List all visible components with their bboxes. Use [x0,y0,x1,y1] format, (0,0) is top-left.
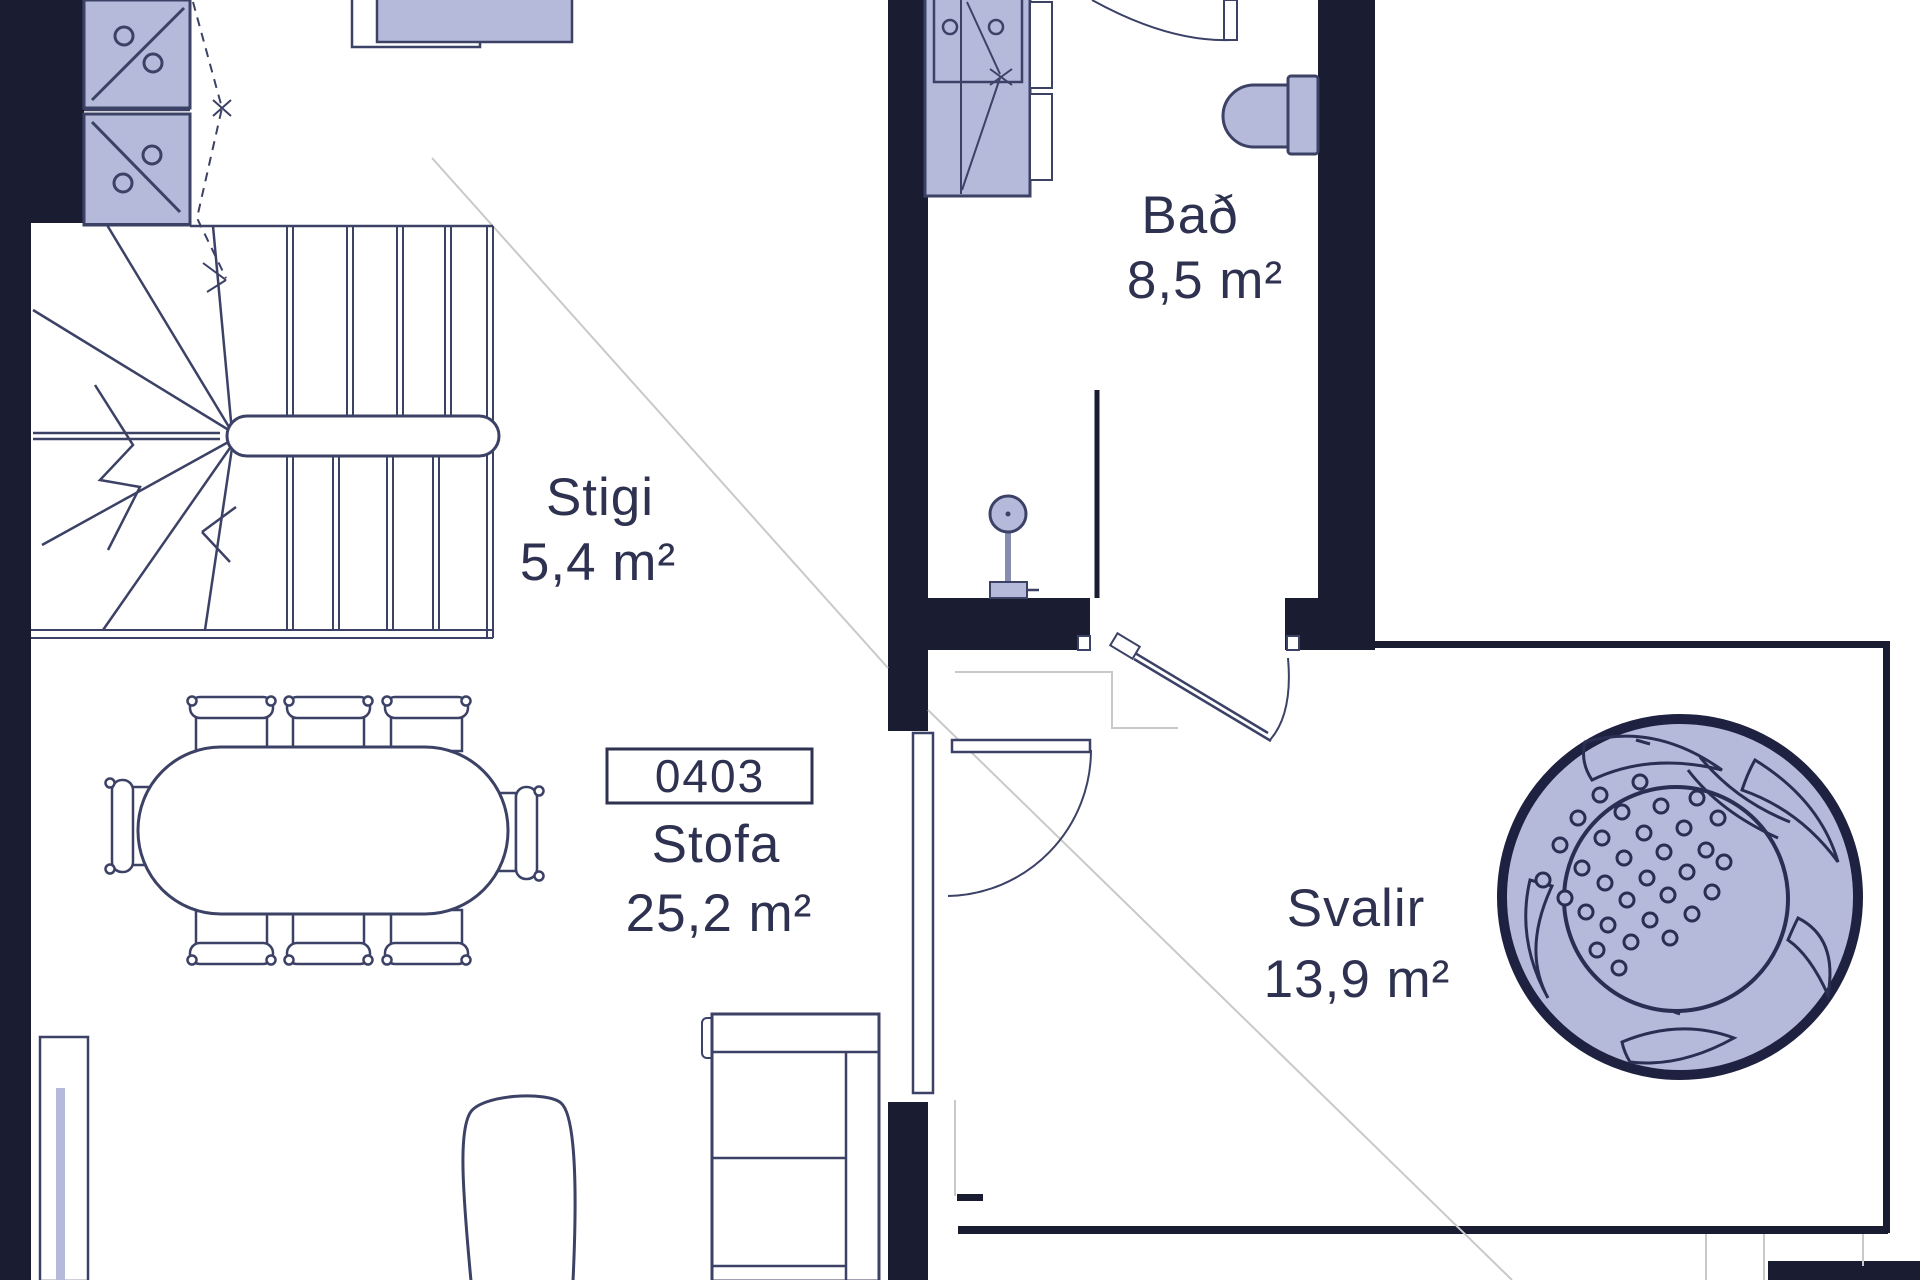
bath-shelf [1030,2,1052,88]
wall-bath-bottom-left [888,598,1090,650]
room-label-svalir: Svalir [1287,879,1426,938]
toilet [1223,76,1318,154]
room-area-svalir: 13,9 m² [1264,950,1451,1009]
room-label-bad: Bað [1141,186,1238,245]
winder-treads [33,225,232,630]
armchair [463,1096,575,1280]
stair-break-line [95,385,140,550]
stair-handrail [227,416,499,456]
sideboard-left [40,1037,88,1280]
room-area-bad: 8,5 m² [1127,251,1283,310]
room-labels: Stigi 5,4 m² Bað 8,5 m² 0403 Stofa 25,2 … [520,186,1450,1009]
wall-bottom-right-bar [1768,1261,1920,1280]
bath-cabinet [925,0,1030,196]
wall-below-balcony-door [888,1102,928,1280]
dining-chair [188,697,471,752]
balcony-railing-bottom [958,1226,1888,1234]
wall-top-left-block [0,0,84,223]
bath-fixture-lamp [990,496,1039,598]
staircase [31,224,499,638]
balcony-door [913,733,1091,1201]
bed-mattress [377,0,572,42]
balcony-railing-top [1375,641,1888,648]
bed-top [352,0,572,47]
floor-plan: Stigi 5,4 m² Bað 8,5 m² 0403 Stofa 25,2 … [0,0,1920,1280]
kitchen-units [84,0,231,292]
stair-walk-line [193,2,231,292]
dining-set [106,697,544,965]
unit-number: 0403 [655,750,765,802]
room-area-stofa: 25,2 m² [626,884,813,943]
bath-shelf [1030,94,1052,180]
hot-tub [1502,719,1858,1075]
bath-entry-door [1092,0,1237,40]
room-label-stofa: Stofa [652,815,781,874]
tv-cabinet [702,1014,879,1280]
dining-chair [188,910,471,965]
room-area-stigi: 5,4 m² [520,533,676,592]
wall-right-column [1318,0,1375,650]
room-label-stigi: Stigi [546,468,654,527]
balcony-railing-right [1883,641,1890,1233]
dining-table [138,747,508,914]
